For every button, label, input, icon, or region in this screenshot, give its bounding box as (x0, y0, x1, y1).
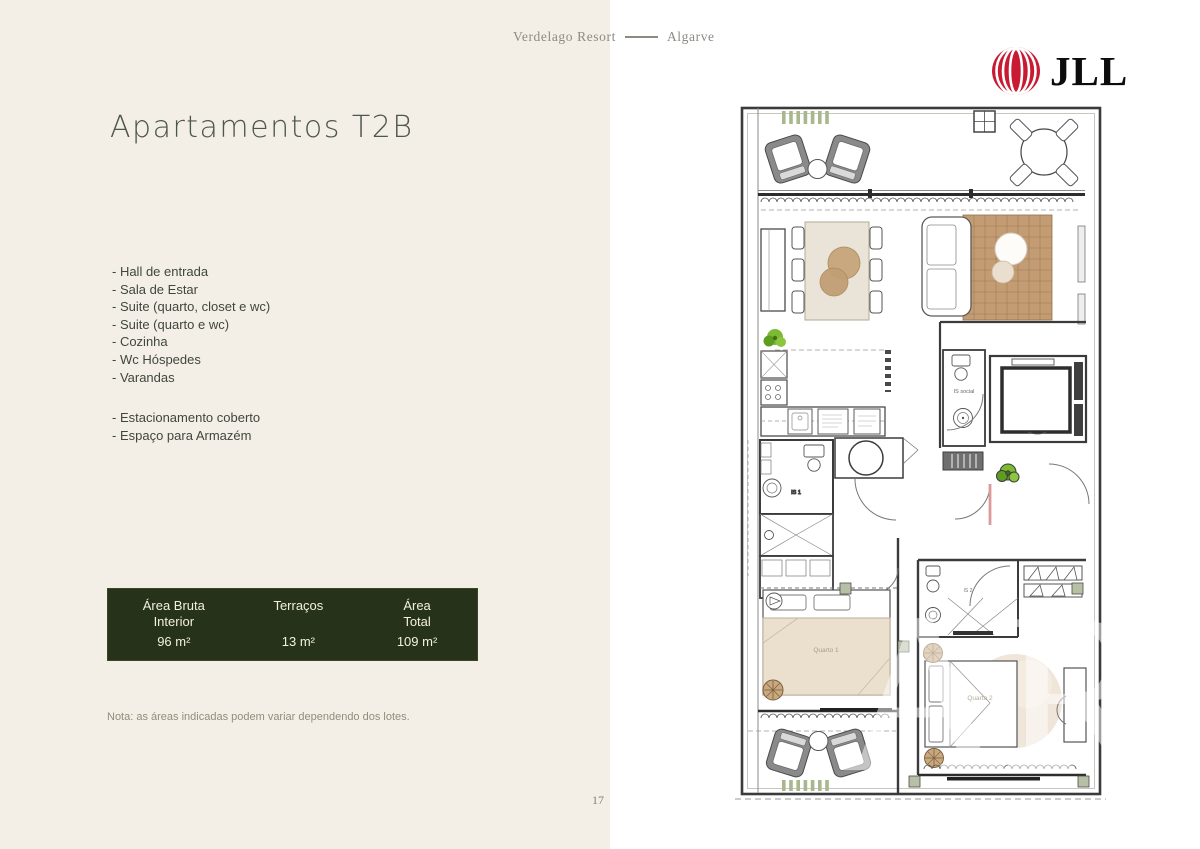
room-label-quarto1: Quarto 1 (813, 647, 839, 654)
region-name: Algarve (667, 29, 715, 45)
room-label-is-social: IS social (954, 389, 975, 395)
page-title: Apartamentos T2B (110, 110, 413, 145)
area-col-gross-interior: Área Bruta Interior 96 m² (108, 589, 240, 660)
areas-note: Nota: as áreas indicadas podem variar de… (107, 711, 410, 723)
area-label: Terraços (273, 598, 323, 614)
feature-item: - Hall de entrada (112, 263, 270, 281)
areas-summary-box: Área Bruta Interior 96 m² Terraços 13 m²… (107, 588, 478, 661)
area-value: 109 m² (397, 634, 437, 660)
coffee-table (995, 233, 1027, 265)
feature-item: - Cozinha (112, 333, 270, 351)
feature-item: - Estacionamento coberto (112, 409, 270, 427)
feature-list: - Hall de entrada - Sala de Estar - Suit… (112, 263, 270, 444)
feature-item: - Sala de Estar (112, 281, 270, 299)
storage-room (990, 356, 1086, 442)
resort-name: Verdelago Resort (513, 29, 616, 45)
feature-item: - Suite (quarto, closet e wc) (112, 298, 270, 316)
area-label: Área Total (391, 598, 443, 630)
left-panel: Apartamentos T2B - Hall de entrada - Sal… (0, 0, 610, 849)
feature-list-gap (112, 386, 270, 409)
area-col-terraces: Terraços 13 m² (240, 589, 358, 660)
washing-machine (943, 452, 983, 470)
header-dash (625, 36, 658, 38)
feature-item: - Espaço para Armazém (112, 427, 270, 445)
area-value: 13 m² (282, 634, 315, 660)
area-value: 96 m² (157, 634, 190, 660)
feature-item: - Varandas (112, 369, 270, 387)
floor-plan: IS social IS 1 (728, 98, 1113, 803)
jll-globe-icon (991, 46, 1041, 96)
area-col-total: Área Total 109 m² (357, 589, 477, 660)
feature-item: - Suite (quarto e wc) (112, 316, 270, 334)
page-number: 17 (592, 793, 604, 808)
running-header: Verdelago Resort Algarve (513, 29, 715, 45)
jll-wordmark: JLL (1050, 51, 1128, 92)
bathroom-is-social: IS social (943, 350, 985, 470)
feature-item: - Wc Hóspedes (112, 351, 270, 369)
jll-logo: JLL (991, 46, 1128, 96)
watermark: AR (840, 565, 1113, 803)
room-label-is1: IS 1 (791, 490, 801, 496)
sideboard (761, 229, 785, 311)
area-label: Área Bruta Interior (132, 598, 216, 630)
